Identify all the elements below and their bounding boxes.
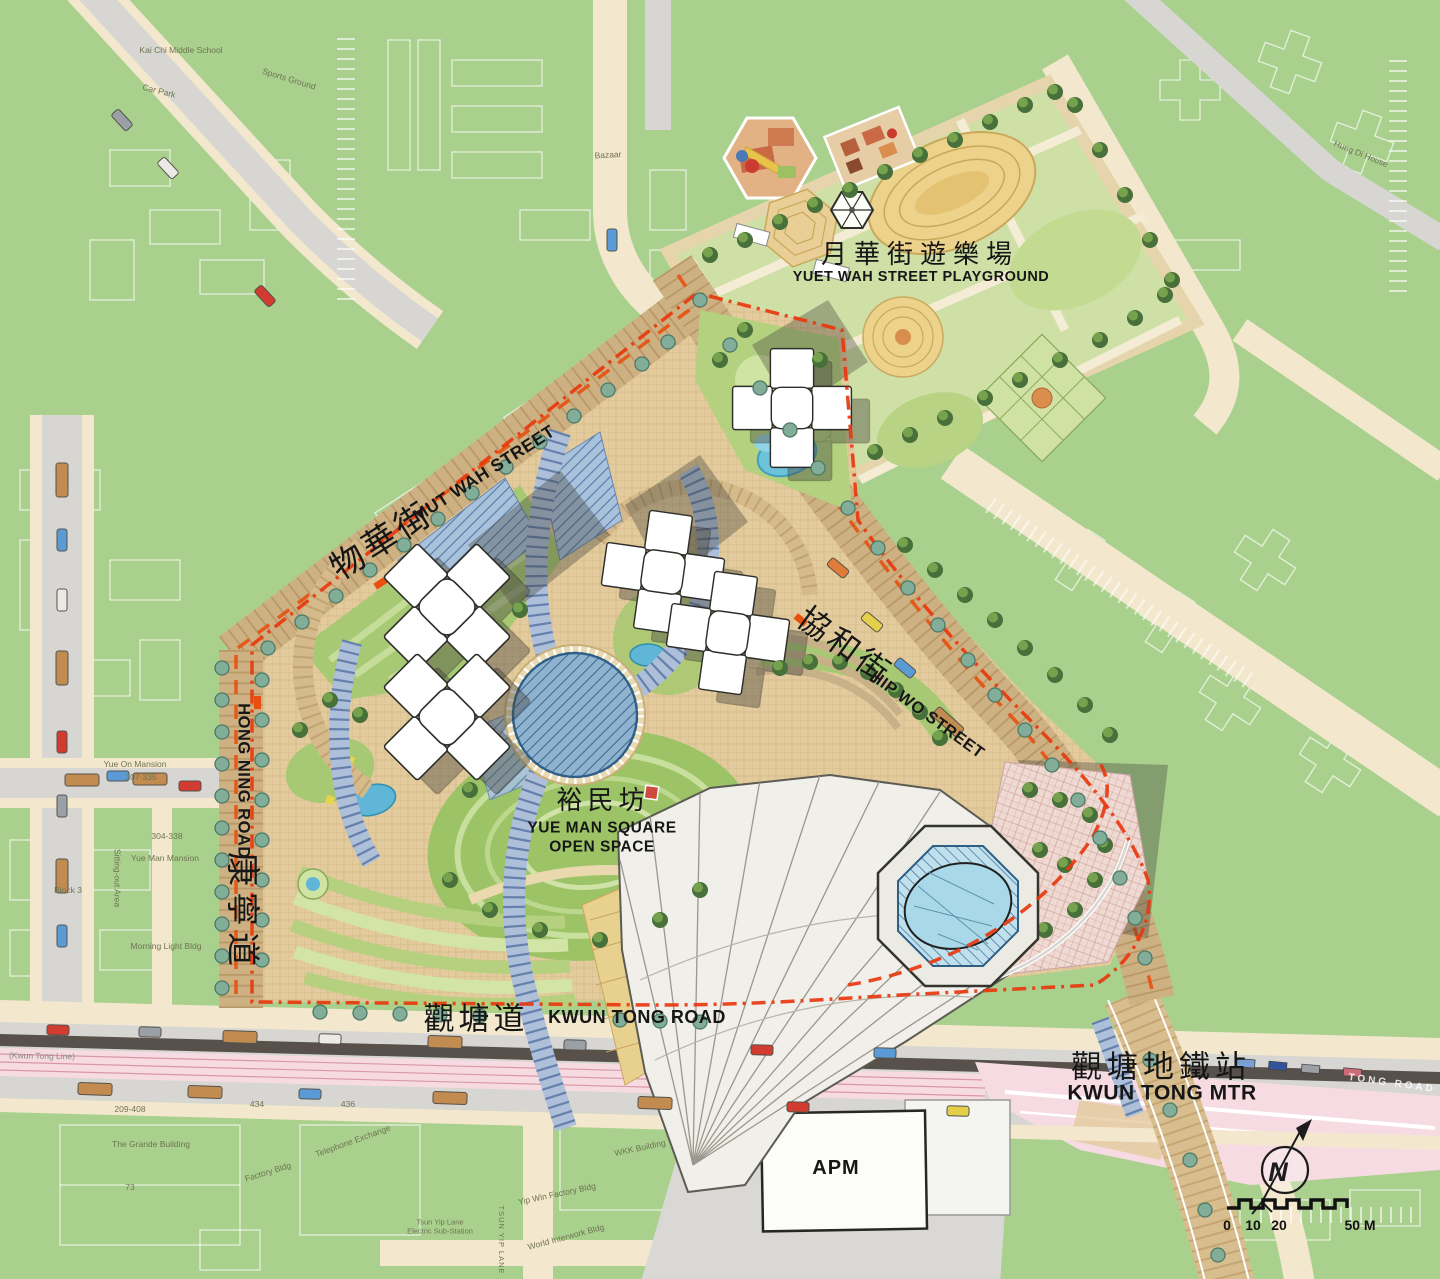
scale-50: 50 M: [1344, 1217, 1375, 1233]
yue-man-square-label-en1: YUE MAN SQUARE: [527, 820, 676, 836]
bg-label: 436: [341, 1100, 355, 1109]
kwun-tong-mtr-label-en: KWUN TONG MTR: [1067, 1083, 1256, 1104]
kwun-tong-road-label-zh: 觀塘道: [424, 1004, 529, 1035]
kwun-tong-road-label-en: KWUN TONG ROAD: [548, 1008, 726, 1026]
scale-20: 20: [1271, 1217, 1287, 1233]
bg-label: 434: [250, 1100, 264, 1109]
bg-label: Morning Light Bldg: [131, 942, 202, 951]
circular-plaza: [863, 297, 943, 377]
hong-ning-road-label-en: HONG NING ROAD: [235, 703, 252, 859]
kwun-tong-mtr-label-zh: 觀塘地鐵站: [1071, 1052, 1251, 1083]
bg-label: TSUN YIP LANE: [497, 1206, 505, 1275]
bg-label: Tsun Yip Lane: [416, 1218, 463, 1226]
bg-label: 307-335: [125, 773, 156, 782]
playground-label-zh: 月華街遊樂場: [821, 241, 1019, 267]
bg-label: Kai Chi Middle School: [139, 46, 222, 55]
octagon-hall: [878, 826, 1038, 986]
master-plan-map: N 0 10 20 50 M 月華街遊樂場 YUET WAH STREET PL…: [0, 0, 1440, 1279]
bg-label: Yue Man Mansion: [131, 854, 199, 863]
bg-label: 209-408: [114, 1105, 145, 1114]
bg-label: Block 3: [54, 886, 82, 895]
bg-label: Yue On Mansion: [104, 760, 167, 769]
bg-label: The Grande Building: [112, 1140, 190, 1149]
mtr-line-note: (Kwun Tong Line): [9, 1051, 75, 1061]
scale-0: 0: [1223, 1217, 1231, 1233]
hong-ning-road-label-zh: 康寧道: [225, 852, 259, 972]
north-label: N: [1268, 1157, 1288, 1187]
bazaar-label: Bazaar: [594, 150, 621, 160]
bg-label: 304-338: [151, 832, 182, 841]
scale-10: 10: [1245, 1217, 1261, 1233]
yue-man-square-label-zh: 裕民坊: [556, 787, 649, 813]
bg-label: Sitting-out Area: [113, 849, 122, 907]
bg-label: Electric Sub-Station: [407, 1227, 473, 1235]
apm-label: APM: [812, 1158, 859, 1178]
playground-label-en: YUET WAH STREET PLAYGROUND: [793, 270, 1050, 285]
bg-label: 73: [125, 1183, 134, 1192]
yue-man-square-label-en2: OPEN SPACE: [549, 839, 655, 855]
